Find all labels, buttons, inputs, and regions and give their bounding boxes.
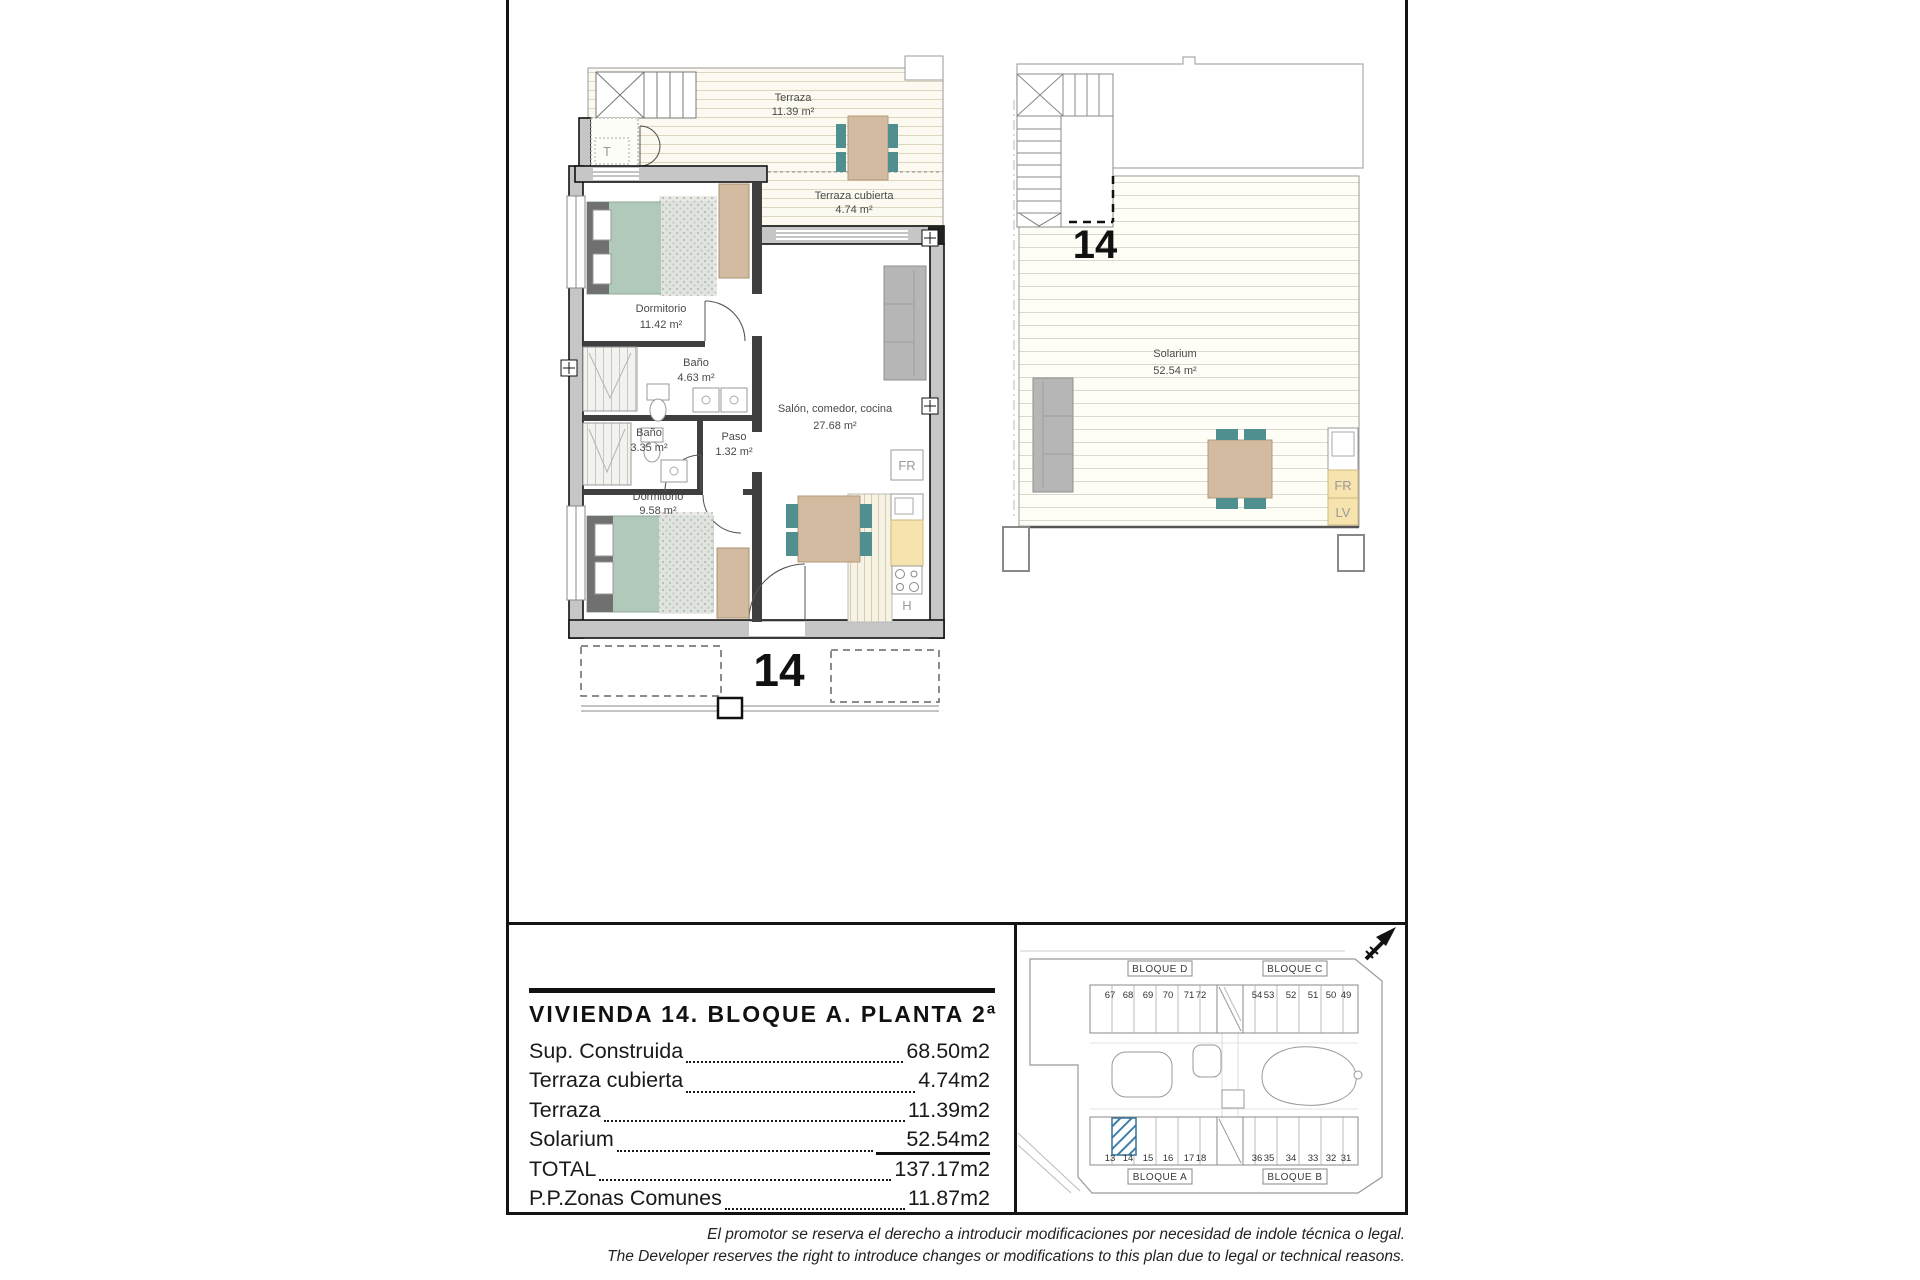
bedroom-2-furniture — [587, 512, 749, 618]
north-arrow-icon — [1366, 927, 1396, 959]
solarium-floor-plan: Solarium 52.54 m² FR LV 14 — [1003, 57, 1364, 571]
chair — [836, 124, 846, 148]
svg-text:34: 34 — [1286, 1153, 1297, 1164]
svg-text:33: 33 — [1308, 1153, 1319, 1164]
svg-text:71: 71 — [1184, 990, 1195, 1001]
toilet — [647, 384, 669, 400]
svg-text:16: 16 — [1163, 1153, 1174, 1164]
svg-text:1.32 m²: 1.32 m² — [715, 446, 753, 458]
svg-text:67: 67 — [1105, 990, 1116, 1001]
svg-text:11.39 m²: 11.39 m² — [772, 106, 815, 118]
parking-outline — [581, 646, 721, 696]
living-kitchen-furniture — [786, 266, 926, 622]
sink — [661, 460, 687, 482]
sofa — [884, 266, 926, 380]
post — [718, 698, 742, 718]
svg-text:31: 31 — [1341, 1153, 1352, 1164]
stairs — [1017, 74, 1113, 227]
sofa — [1033, 378, 1073, 492]
chair — [1216, 429, 1238, 440]
chair — [786, 532, 798, 556]
unit-number-label: 14 — [753, 644, 805, 696]
svg-text:17: 17 — [1184, 1153, 1195, 1164]
dot-leader — [604, 1099, 905, 1123]
small-pool — [1193, 1045, 1221, 1077]
sliding-window — [776, 230, 908, 240]
green-area — [1112, 1052, 1172, 1097]
pool — [1262, 1047, 1356, 1106]
parking-outline — [831, 650, 939, 702]
svg-text:72: 72 — [1196, 990, 1207, 1001]
block-d-label: BLOQUE D — [1132, 964, 1188, 975]
svg-text:4.63 m²: 4.63 m² — [677, 372, 715, 384]
bedroom-1-furniture — [587, 184, 749, 296]
svg-text:53: 53 — [1264, 990, 1275, 1001]
summary-row: Sup. Construida68.50m2 — [529, 1039, 990, 1068]
svg-text:9.58 m²: 9.58 m² — [639, 505, 677, 517]
plan-sheet-border: T — [506, 0, 1408, 1215]
block-b-label: BLOQUE B — [1267, 1172, 1322, 1183]
summary-row: Solarium52.54m2 — [529, 1127, 990, 1156]
block-a-label: BLOQUE A — [1133, 1172, 1188, 1183]
dot-leader — [686, 1040, 903, 1064]
chair — [888, 124, 898, 148]
dot-leader — [686, 1069, 915, 1093]
pillow — [595, 562, 613, 594]
column — [1338, 535, 1364, 571]
terrace-table — [848, 116, 888, 180]
svg-text:54: 54 — [1252, 990, 1263, 1001]
stairs — [596, 72, 696, 118]
room-label-dormitorio-2: Dormitorio — [633, 491, 684, 503]
unit-number-label: 14 — [1073, 223, 1118, 267]
svg-text:32: 32 — [1326, 1153, 1337, 1164]
dining-table — [798, 496, 860, 562]
svg-text:3.35 m²: 3.35 m² — [630, 442, 668, 454]
chair — [860, 504, 872, 528]
legal-disclaimer: El promotor se reserva el derecho a intr… — [506, 1224, 1405, 1268]
svg-text:18: 18 — [1196, 1153, 1207, 1164]
site-plan-drawing: BLOQUE D BLOQUE C BLOQUE A BLOQUE B 67 6… — [1017, 925, 1402, 1209]
svg-text:36: 36 — [1252, 1153, 1263, 1164]
block-c-label: BLOQUE C — [1267, 964, 1323, 975]
dishwasher-label: LV — [1336, 505, 1351, 520]
bed-throw — [659, 512, 713, 614]
summary-row: Terraza11.39m2 — [529, 1098, 990, 1127]
fridge-label: FR — [1334, 478, 1351, 493]
room-label-bano-1: Baño — [683, 357, 709, 369]
room-label-bano-2: Baño — [636, 427, 662, 439]
pillow — [593, 254, 611, 284]
svg-text:27.68 m²: 27.68 m² — [813, 420, 857, 432]
kitchen-counter — [891, 520, 923, 566]
plan-sheet-page: T — [0, 0, 1920, 1280]
floor-plans-drawing: T — [509, 0, 1405, 922]
sink — [721, 388, 747, 412]
svg-text:11.42 m²: 11.42 m² — [640, 319, 683, 331]
chair — [860, 532, 872, 556]
room-label-salon: Salón, comedor, cocina — [778, 403, 893, 415]
site-plan: BLOQUE D BLOQUE C BLOQUE A BLOQUE B 67 6… — [1018, 927, 1396, 1193]
pillow — [595, 524, 613, 556]
plaza — [1222, 1090, 1244, 1108]
room-label-paso: Paso — [721, 431, 746, 443]
svg-text:51: 51 — [1308, 990, 1319, 1001]
column — [1003, 527, 1029, 571]
svg-text:52.54 m²: 52.54 m² — [1153, 365, 1197, 377]
room-label-terraza-cubierta: Terraza cubierta — [815, 190, 895, 202]
bottom-band: VIVIENDA 14. BLOQUE A. PLANTA 2ª Sup. Co… — [509, 922, 1405, 1212]
svg-text:52: 52 — [1286, 990, 1297, 1001]
unit-14-highlight — [1112, 1118, 1136, 1155]
summary-row: Terraza cubierta4.74m2 — [529, 1068, 990, 1097]
disclaimer-line-en: The Developer reserves the right to intr… — [506, 1246, 1405, 1268]
chair — [1244, 498, 1266, 509]
pillow — [593, 210, 611, 240]
dining-table — [1208, 440, 1272, 498]
site-plan-box: BLOQUE D BLOQUE C BLOQUE A BLOQUE B 67 6… — [1017, 925, 1405, 1212]
room-label-dormitorio-1: Dormitorio — [636, 303, 687, 315]
svg-text:35: 35 — [1264, 1153, 1275, 1164]
storage-t-label: T — [603, 144, 611, 159]
disclaimer-line-es: El promotor se reserva el derecho a intr… — [506, 1224, 1405, 1246]
fridge-label: FR — [898, 458, 915, 473]
svg-text:70: 70 — [1163, 990, 1174, 1001]
bed-throw — [661, 198, 715, 296]
svg-text:50: 50 — [1326, 990, 1337, 1001]
room-label-solarium: Solarium — [1153, 348, 1196, 360]
dot-leader — [617, 1128, 873, 1152]
svg-text:4.74 m²: 4.74 m² — [835, 204, 873, 216]
chair — [888, 152, 898, 172]
wardrobe — [719, 184, 749, 278]
terrace-furniture — [836, 116, 898, 180]
chair — [1244, 429, 1266, 440]
chair — [1216, 498, 1238, 509]
title-rule — [529, 988, 995, 993]
apartment-floor-plan: T — [561, 56, 944, 718]
chair — [786, 504, 798, 528]
summary-row: TOTAL137.17m2 — [529, 1157, 990, 1186]
chair — [836, 152, 846, 172]
dot-leader — [599, 1157, 891, 1181]
svg-text:69: 69 — [1143, 990, 1154, 1001]
room-label-terraza: Terraza — [775, 92, 813, 104]
summary-row: P.P.Zonas Comunes11.87m2 — [529, 1186, 990, 1215]
svg-text:68: 68 — [1123, 990, 1134, 1001]
svg-text:13: 13 — [1105, 1153, 1116, 1164]
svg-text:49: 49 — [1341, 990, 1352, 1001]
hob-label: H — [902, 598, 911, 613]
sink — [693, 388, 719, 412]
surface-summary-box: VIVIENDA 14. BLOQUE A. PLANTA 2ª Sup. Co… — [509, 925, 1017, 1212]
page-title: VIVIENDA 14. BLOQUE A. PLANTA 2ª — [529, 1001, 999, 1028]
surface-rows: Sup. Construida68.50m2 Terraza cubierta4… — [529, 1039, 990, 1215]
wardrobe — [717, 548, 749, 618]
dot-leader — [725, 1187, 905, 1211]
svg-text:14: 14 — [1123, 1153, 1134, 1164]
svg-text:15: 15 — [1143, 1153, 1154, 1164]
